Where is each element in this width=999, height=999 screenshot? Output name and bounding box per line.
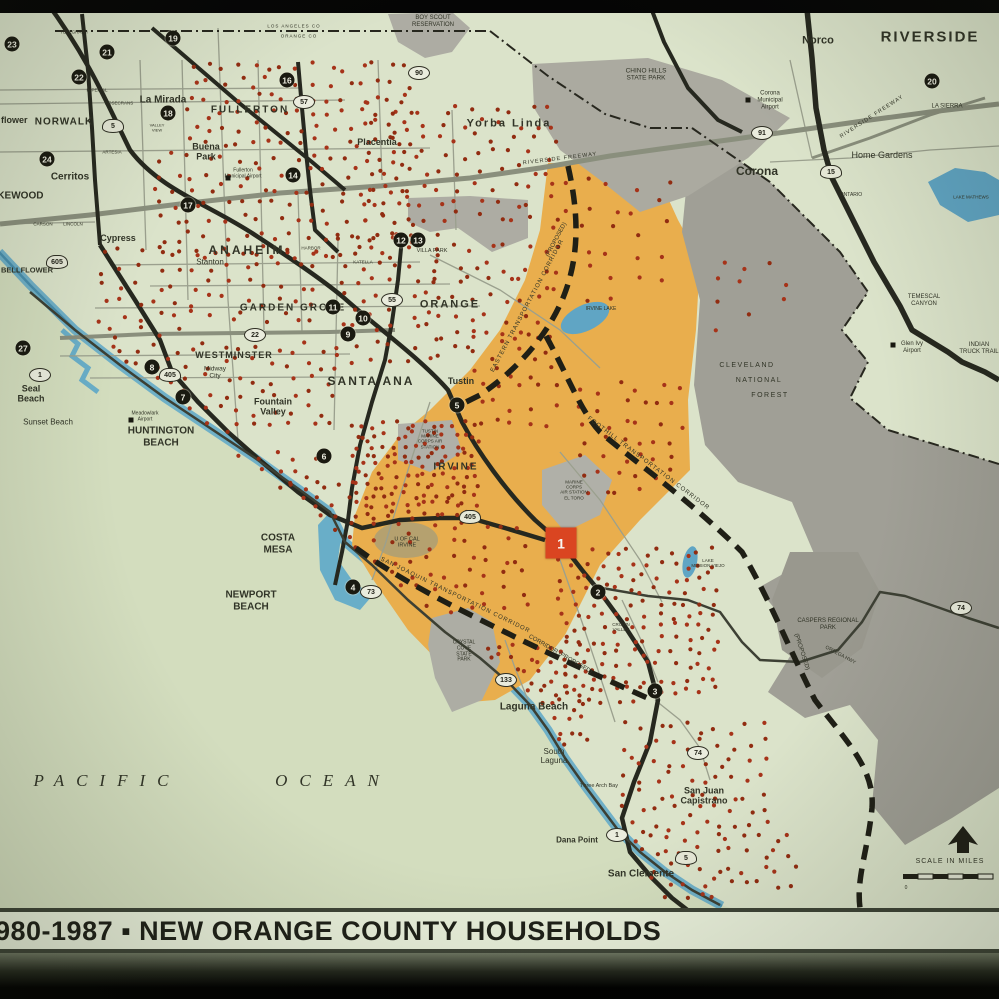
slide-bottom-fade xyxy=(0,953,999,999)
title-band: 980-1987 ▪ NEW ORANGE COUNTY HOUSEHOLDS xyxy=(0,912,999,951)
orange-county-map: RIVERSIDENorcoCoronaHome GardensLA SIERR… xyxy=(0,0,999,910)
slide-top-border xyxy=(0,0,999,13)
slide-title: 980-1987 ▪ NEW ORANGE COUNTY HOUSEHOLDS xyxy=(0,916,661,947)
scale-bar xyxy=(903,874,993,879)
uci-campus-region xyxy=(374,522,438,558)
map-base-svg xyxy=(0,0,999,910)
slide-photo: RIVERSIDENorcoCoronaHome GardensLA SIERR… xyxy=(0,0,999,999)
